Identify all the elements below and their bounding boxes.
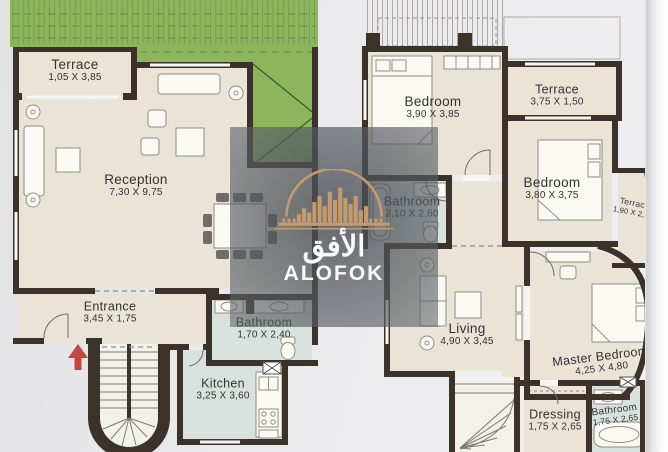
roof-outline (504, 17, 620, 59)
pergola-post (366, 33, 380, 46)
room-label-living: Living4,90 X 3,45 (440, 321, 493, 347)
alofok-watermark: الأفق ALOFOK (230, 127, 438, 327)
watermark-latin-text: ALOFOK (284, 262, 385, 285)
room-label-entrance: Entrance3,45 X 1,75 (83, 299, 136, 324)
room-label-kitchen: Kitchen3,25 X 3,60 (196, 376, 249, 401)
shaft-box (620, 377, 636, 387)
entrance-arrow-icon (68, 344, 88, 370)
room-label-terrace-r1: Terrace3,75 X 1,50 (530, 82, 583, 107)
page-edge-curl (645, 0, 668, 452)
room-floor-hall (452, 181, 502, 249)
shaft-box (263, 362, 281, 374)
watermark-arabic-text: الأفق (303, 233, 366, 262)
kitchen-fixtures (256, 372, 282, 438)
alofok-logo-icon (270, 169, 398, 231)
floorplan-photo: Terrace1,05 X 3,85 Reception7,30 X 9,75 … (0, 0, 668, 452)
room-label-terrace-left: Terrace1,05 X 3,85 (48, 57, 101, 83)
pergola-post (458, 33, 472, 46)
room-label-reception: Reception7,30 X 9,75 (104, 172, 168, 198)
room-label-bedroom-1: Bedroom3,90 X 3,85 (405, 94, 462, 120)
room-label-dressing: Dressing1,75 X 2,65 (528, 407, 581, 432)
pergola-hatch (366, 0, 504, 46)
room-label-bedroom-2: Bedroom3,80 X 3,75 (524, 175, 581, 201)
stairwell-floor-right (455, 377, 514, 452)
